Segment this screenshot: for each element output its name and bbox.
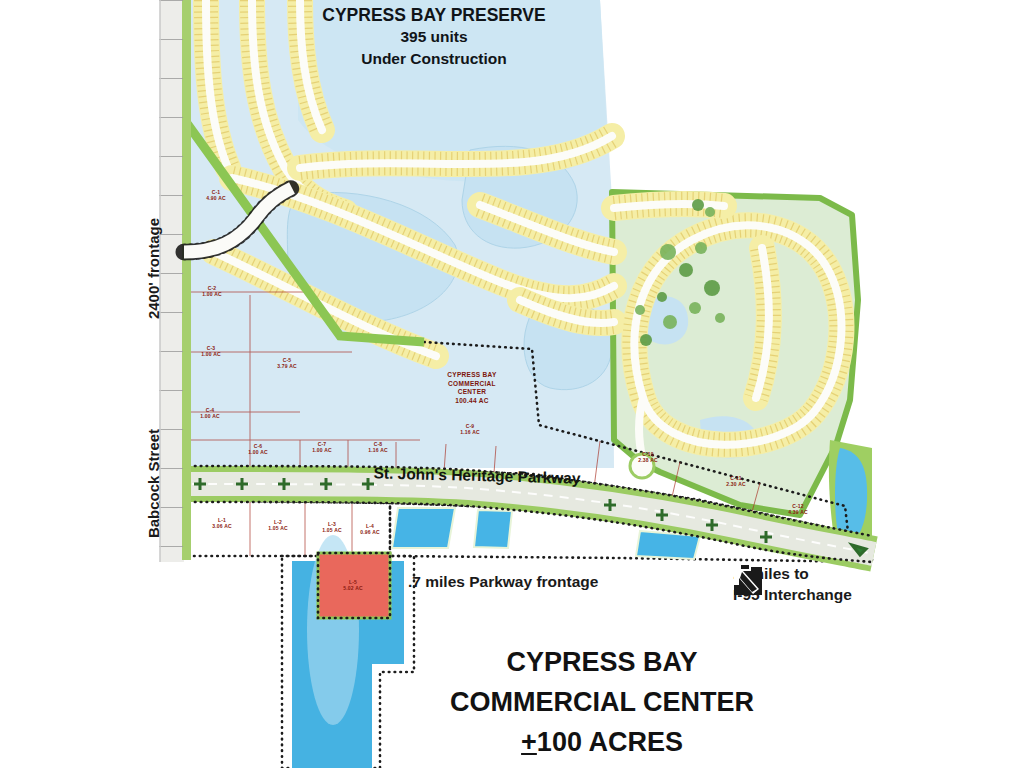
map-title-line3: Under Construction [253,48,615,70]
site-plan-page: CYPRESS BAY PRESERVE 395 units Under Con… [0,0,1024,768]
parcel-label: C-112.30 AC [726,476,746,488]
babcock-street-label: Babcock Street [145,414,162,554]
parcel-label: C-21.00 AC [202,286,222,298]
parcel-label: C-102.38 AC [638,452,658,464]
pond-south-2 [474,510,512,548]
canal [282,535,414,768]
parcel-label: L-21.05 AC [268,520,288,532]
footer-title: CYPRESS BAY COMMERCIAL CENTER +100 ACRES [418,642,786,762]
footer-title-line2: COMMERCIAL CENTER [418,682,786,722]
footer-title-line1: CYPRESS BAY [418,642,786,682]
parcel-label: L-55.02 AC [343,580,363,592]
map-title: CYPRESS BAY PRESERVE 395 units Under Con… [253,4,615,70]
map-title-line1: CYPRESS BAY PRESERVE [253,4,615,26]
parcel-label: C-61.00 AC [248,444,268,456]
parkway-frontage-note: .7 miles Parkway frontage [408,573,598,591]
parcel-label: C-41.00 AC [200,408,220,420]
parcel-label: C-14.90 AC [206,190,226,202]
parcel-label: C-71.00 AC [312,442,332,454]
frontage-label: 2400' frontage [145,199,162,339]
i95-arrow-icon [733,563,763,597]
parcel-label: L-31.05 AC [322,522,342,534]
footer-title-line3: +100 ACRES [418,722,786,762]
parcel-label: L-40.96 AC [360,524,380,536]
i95-annotation: .6 miles to I-95 Interchange [733,563,852,605]
parcel-label: C-81.16 AC [368,442,388,454]
map-title-line2: 395 units [253,26,615,48]
parcel-label: C-124.39 AC [788,504,808,516]
center-parcel-label: CYPRESS BAY COMMERCIAL CENTER 100.44 AC [417,371,527,405]
parcel-label: C-31.00 AC [201,346,221,358]
parcel-label: C-53.79 AC [277,358,297,370]
parcel-label: C-91.16 AC [460,424,480,436]
green-buffer-west [182,0,191,560]
pond-south-1 [392,508,455,548]
parcel-label: L-13.06 AC [212,518,232,530]
